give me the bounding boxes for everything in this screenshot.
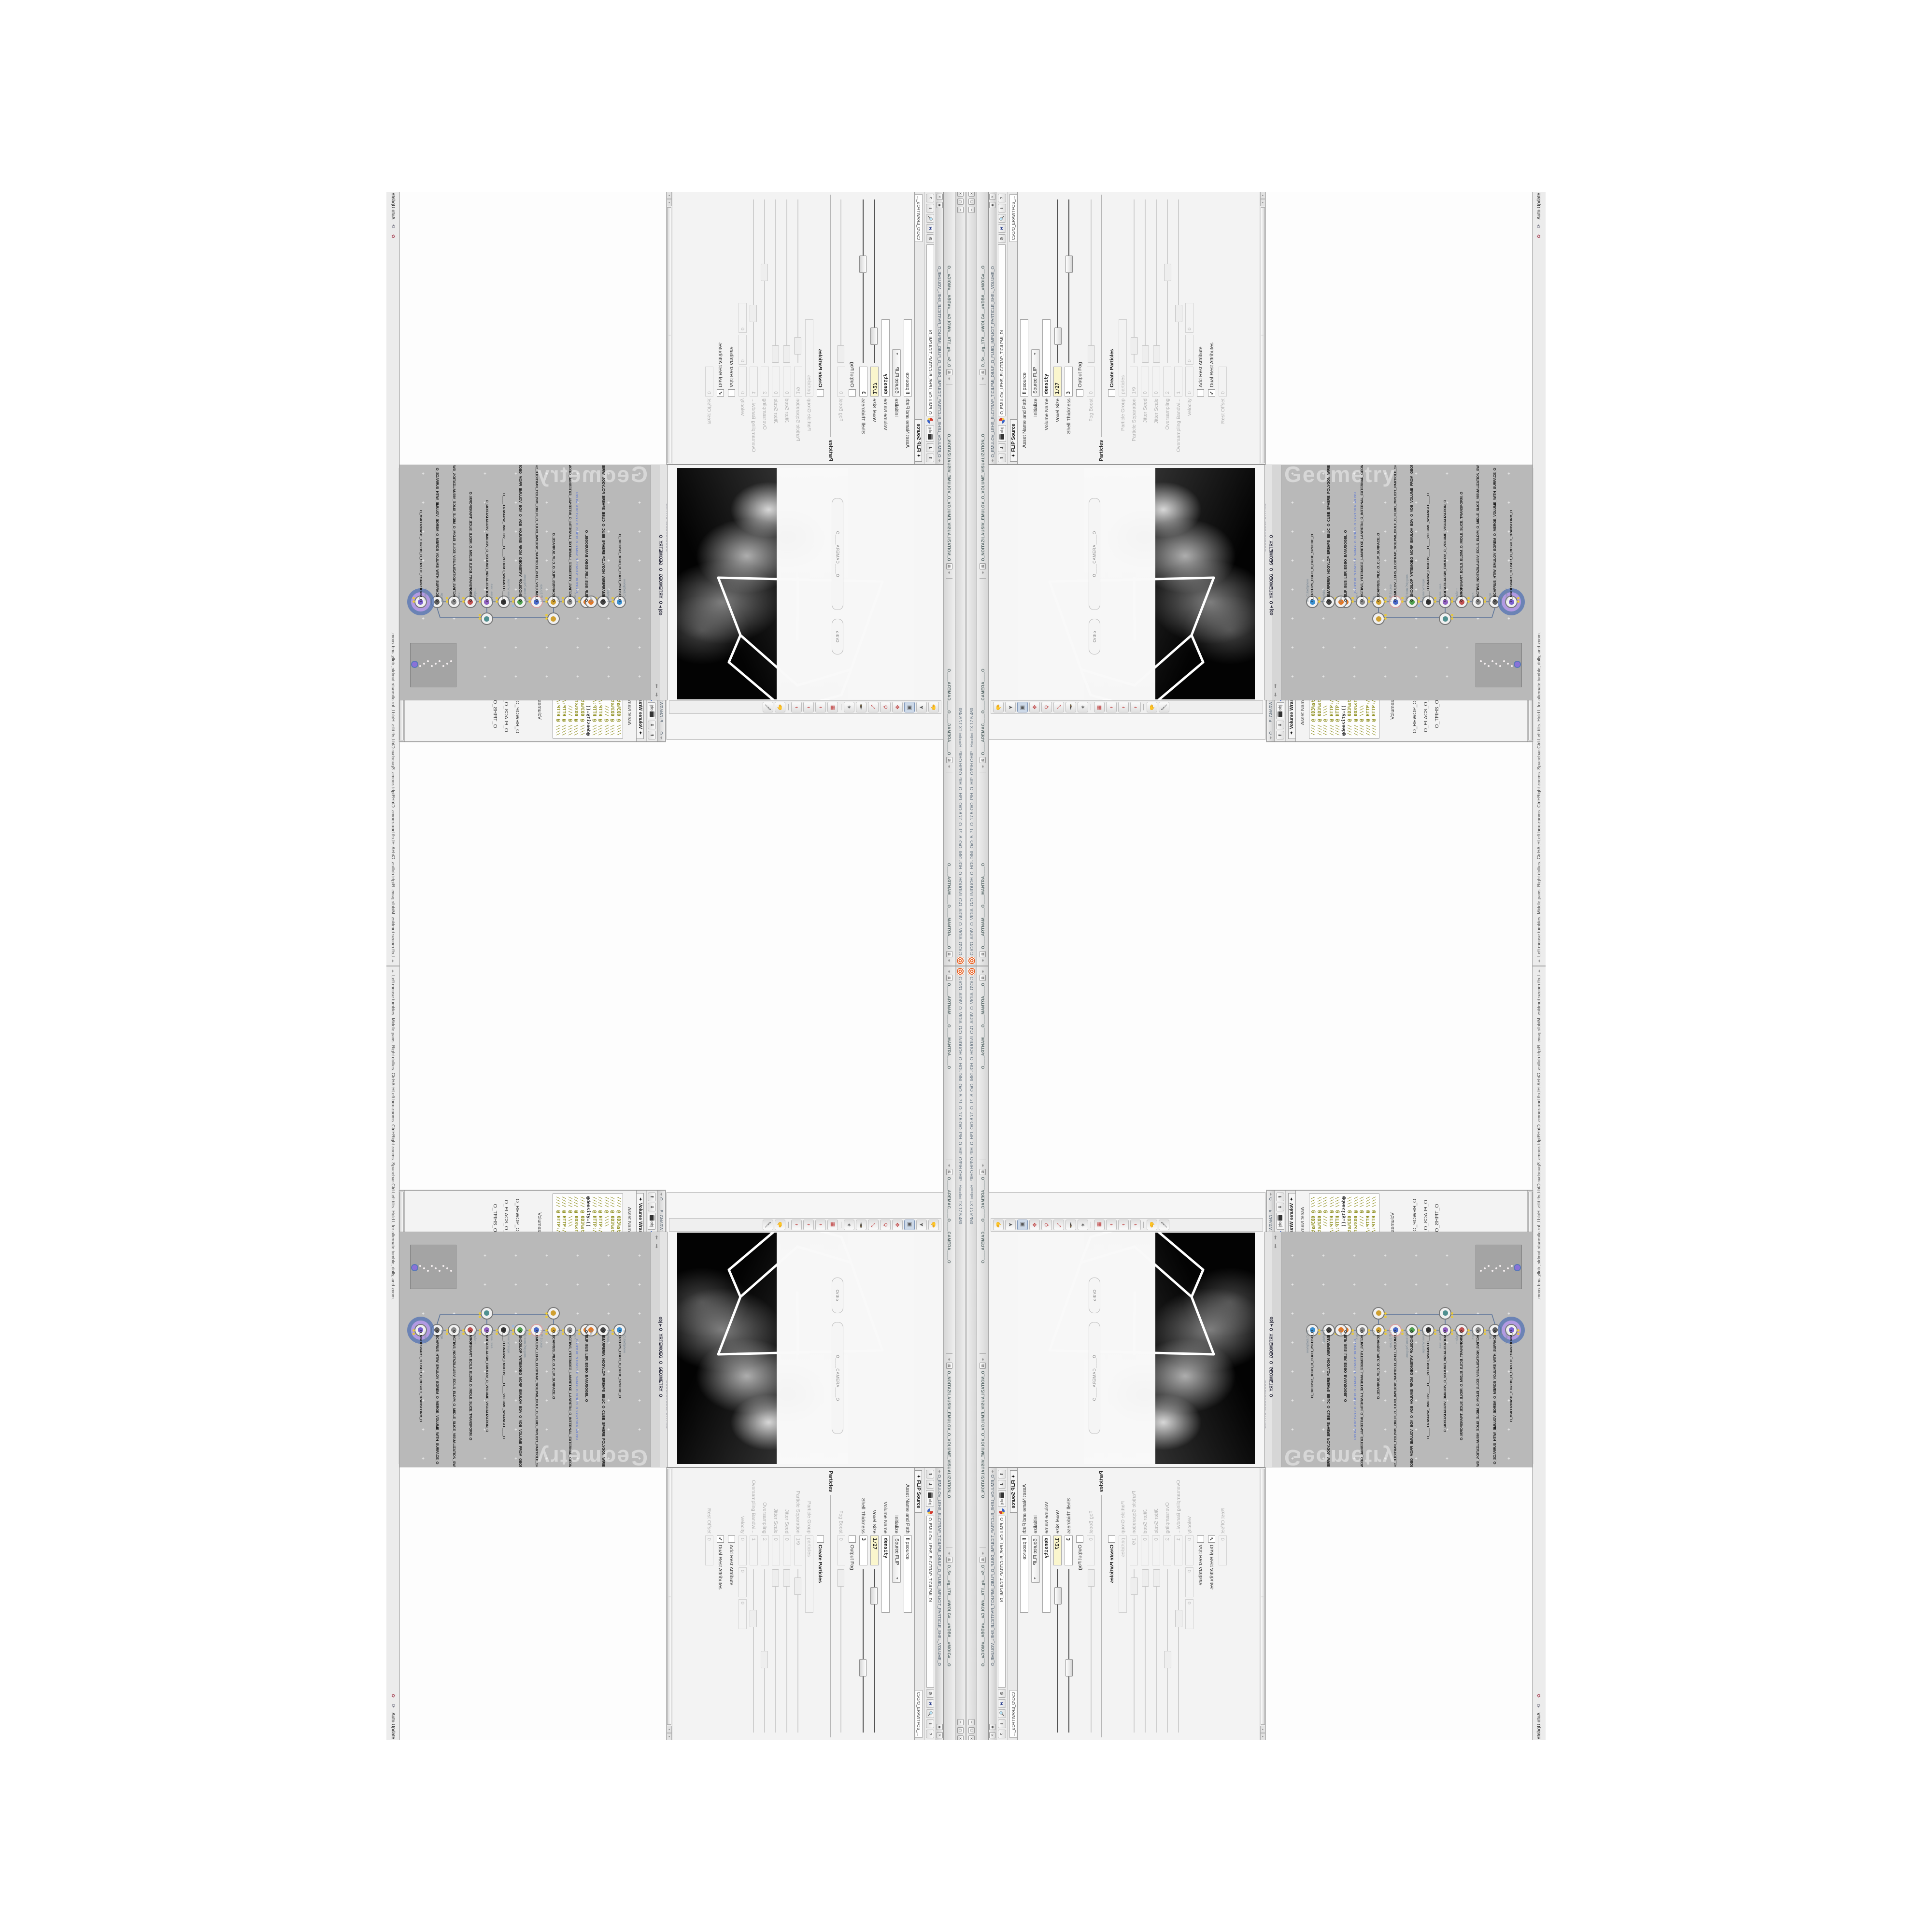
field-fog-boost[interactable]: 0	[1087, 1535, 1095, 1565]
node-flag-badge[interactable]	[1451, 597, 1453, 599]
node-flag-badge[interactable]	[496, 600, 498, 603]
slider-handle[interactable]	[838, 1569, 845, 1587]
checkbox-dual-rest-attributes[interactable]: ✓	[1208, 389, 1215, 397]
network-node-clip[interactable]	[1372, 612, 1385, 625]
network-node-visualize[interactable]	[481, 1307, 493, 1320]
slider-oversampling[interactable]	[765, 1569, 766, 1733]
node-flag-badge[interactable]	[1384, 617, 1387, 620]
close-window-icon[interactable]: ✕	[937, 1732, 943, 1738]
gear-icon[interactable]: ⚙	[926, 234, 935, 243]
node-flag-badge[interactable]	[462, 1329, 465, 1332]
gear-icon[interactable]: ⚙	[998, 1689, 1006, 1698]
select-arrow-icon[interactable]: ➤	[1005, 1220, 1016, 1230]
gear-icon[interactable]: ⚙	[926, 1689, 935, 1698]
rotate-tool-icon[interactable]: ⟳	[880, 1220, 891, 1230]
field-particle-group[interactable]: particles	[805, 1535, 813, 1613]
field-shell-thickness[interactable]: 3	[1065, 367, 1073, 397]
slider-voxel-size[interactable]	[874, 1569, 875, 1733]
node-flag-badge[interactable]	[545, 614, 548, 616]
field-shell-thickness[interactable]: 3	[859, 367, 867, 397]
node-flag-badge[interactable]	[545, 1333, 548, 1335]
node-flag-badge[interactable]	[1517, 600, 1520, 603]
node-flag-badge[interactable]	[1501, 597, 1503, 599]
slider-handle[interactable]	[871, 1587, 878, 1605]
node-flag-badge[interactable]	[1451, 1316, 1453, 1318]
nav-down-icon[interactable]: ⬇	[926, 1480, 935, 1489]
node-flag-badge[interactable]	[1451, 1329, 1453, 1332]
pin-window-icon[interactable]: ◉	[989, 1724, 995, 1730]
restore-icon[interactable]: ▢	[957, 199, 964, 205]
node-flag-badge[interactable]	[412, 600, 415, 603]
view-tool-icon[interactable]: ✋	[993, 1220, 1004, 1230]
brush-tool-icon[interactable]: 🖌	[1159, 702, 1169, 712]
docked-window-titlebar[interactable]: ◂▸⊠O_5=__#g_1T#__#WOLG#__#VDB#__#MOIG#__…	[946, 192, 952, 383]
minimize-icon[interactable]: ‒	[957, 1719, 964, 1725]
field-fog-boost[interactable]: 0	[837, 1535, 845, 1565]
pane-tab-flip-source[interactable]: ✦FLIP Source	[915, 419, 922, 462]
asset-path-field[interactable]: C:/O/O_ERAWTFOS_...	[915, 194, 923, 242]
ortho-pill[interactable]: Ortho	[832, 619, 843, 654]
network-node-clip[interactable]	[547, 1307, 560, 1320]
field-velocity[interactable]: 0	[739, 335, 747, 365]
field-jitter-scale[interactable]: 0	[772, 367, 780, 397]
node-flag-badge[interactable]	[446, 1333, 448, 1335]
network-path-field[interactable]: O_EMULOV_LEHS_ELCITRAP_TICILPMI_DI	[926, 1516, 934, 1688]
slider-handle[interactable]	[1131, 337, 1138, 355]
hscroll-thumb[interactable]: ⠿	[1261, 207, 1265, 463]
obj-tab[interactable]: obj	[1276, 702, 1284, 719]
nav-down-icon[interactable]: ⬇	[648, 1203, 656, 1211]
snap-multi-icon[interactable]: ⌁	[791, 1220, 802, 1230]
node-flag-badge[interactable]	[496, 597, 498, 599]
docked-window-titlebar[interactable]: ◂▸⊠O_NOITAZILAUSIV_EMULOV_O_VOLUME_VISUA…	[980, 384, 986, 577]
node-flag-badge[interactable]	[1517, 597, 1520, 599]
asset-path-field[interactable]: C:/O/O_ERAWTFOS_...	[1009, 1690, 1017, 1738]
window-titlebar[interactable]: ◂▸O_EMULOV_LEHS_ELCITRAP_TICILPMI_DIULF_…	[989, 1468, 996, 1740]
docked-window-titlebar[interactable]: ◂▸⊠O____AREMAC____O____CAMERA____O	[980, 1162, 986, 1354]
field-jitter-seed[interactable]: 0	[783, 1535, 791, 1565]
scale-tool-icon[interactable]: ⤢	[1053, 702, 1064, 712]
close-window-icon[interactable]: ✕	[937, 194, 943, 200]
close-docked-icon[interactable]: ⊠	[980, 1169, 986, 1175]
restore-icon[interactable]: ▢	[968, 199, 975, 205]
network-minimap[interactable]	[1476, 643, 1522, 687]
network-node-clip[interactable]	[547, 612, 560, 625]
snap-edge-icon[interactable]: ⌁	[803, 702, 814, 712]
refresh-icon[interactable]: ⟳	[1535, 223, 1543, 230]
checkbox-dual-rest-attributes[interactable]: ✓	[717, 1535, 724, 1543]
node-flag-badge[interactable]	[429, 1329, 431, 1332]
node-flag-badge[interactable]	[479, 1316, 481, 1318]
main-titlebar[interactable]: C:/O/O_AIDIV_O_VIDIA_O/O_INIDUOH_O_HOUDI…	[955, 966, 966, 1740]
slider-voxel-size[interactable]	[874, 199, 875, 363]
slider-particle-separation[interactable]	[798, 199, 799, 363]
brush-tool-icon[interactable]: 🖌	[1159, 1220, 1169, 1230]
slider-particle-separation[interactable]	[1134, 1569, 1135, 1733]
node-flag-badge[interactable]	[545, 597, 548, 599]
checkbox-output-fog[interactable]	[849, 389, 856, 397]
node-flag-badge[interactable]	[1418, 1329, 1420, 1332]
node-flag-badge[interactable]	[479, 1329, 481, 1332]
node-flag-badge[interactable]	[462, 600, 465, 603]
docked-window-titlebar[interactable]: ◂▸⊠O_NOITAZILAUSIV_EMULOV_O_VOLUME_VISUA…	[946, 1356, 952, 1548]
node-flag-badge[interactable]	[1401, 597, 1404, 599]
network-node-visualize[interactable]	[1439, 1307, 1451, 1320]
asset-name-field[interactable]: flipsource	[904, 319, 912, 397]
slider-handle[interactable]	[750, 1610, 757, 1627]
nav-up-icon[interactable]: ⬆	[998, 1470, 1006, 1478]
node-flag-badge[interactable]	[1318, 597, 1321, 599]
node-flag-badge[interactable]	[1368, 1333, 1370, 1335]
scroll-left-icon[interactable]: ◂	[667, 199, 672, 206]
slider-jitter-seed[interactable]	[1145, 1569, 1146, 1733]
node-flag-badge[interactable]	[1501, 1329, 1503, 1332]
node-flag-badge[interactable]	[1318, 1329, 1321, 1332]
node-flag-badge[interactable]	[545, 1329, 548, 1332]
close-window-icon[interactable]: ✕	[989, 1732, 995, 1738]
field-jitter-seed[interactable]: 0	[1141, 367, 1149, 397]
close-docked-icon[interactable]: ⊠	[946, 563, 952, 569]
node-flag-badge[interactable]	[545, 600, 548, 603]
docked-window-titlebar[interactable]: ◂▸⊠O____AREMAC____O____CAMERA____O	[946, 1162, 952, 1354]
rotate-tool-icon[interactable]: ⟳	[1041, 1220, 1052, 1230]
docked-window-titlebar[interactable]: ◂▸⊠O_5=__#g_1T#__#WOLG#__#VDB#__#MOIG#__…	[980, 1550, 986, 1740]
close-docked-icon[interactable]: ⊠	[980, 757, 986, 763]
slider-handle[interactable]	[772, 345, 780, 363]
snap-grid-icon[interactable]: ▦	[827, 1220, 838, 1230]
slider-handle[interactable]	[795, 1577, 802, 1595]
select-box-icon[interactable]: ▣	[904, 1220, 915, 1230]
slider-fog-boost[interactable]	[1091, 1569, 1092, 1733]
close-docked-icon[interactable]: ⊠	[946, 369, 952, 375]
field-fog-boost[interactable]: 0	[837, 367, 845, 397]
close-icon[interactable]: ✕	[957, 192, 964, 197]
select-box-icon[interactable]: ▣	[904, 702, 915, 712]
close-docked-icon[interactable]: ⊠	[980, 975, 986, 981]
menu-initialize[interactable]: Source FLIP▼	[1031, 349, 1040, 397]
close-docked-icon[interactable]: ⊠	[980, 563, 986, 569]
pane-hscrollbar[interactable]: ⠿◂▸	[1260, 192, 1265, 464]
field-velocity[interactable]: 0	[739, 1567, 747, 1597]
node-flag-badge[interactable]	[1484, 597, 1486, 599]
close-docked-icon[interactable]: ⊠	[946, 975, 952, 981]
obj-tab[interactable]: obj	[648, 702, 656, 719]
auto-update-selector[interactable]: Auto Update▾	[390, 1712, 396, 1740]
asset-path-field[interactable]: C:/O/O_ERAWTFOS_...	[1009, 194, 1017, 242]
brush-tool-icon[interactable]: 🖌	[763, 702, 773, 712]
node-flag-badge[interactable]	[1351, 597, 1354, 599]
node-flag-badge[interactable]	[1401, 1333, 1404, 1335]
select-arrow-icon[interactable]: ➤	[916, 1220, 927, 1230]
node-flag-badge[interactable]	[446, 597, 448, 599]
slider-handle[interactable]	[1142, 1569, 1149, 1587]
rotate-tool-icon[interactable]: ⟳	[1041, 702, 1052, 712]
ortho-pill[interactable]: Ortho	[1089, 1278, 1100, 1313]
field-particle-separation[interactable]: 1/9	[1130, 1535, 1138, 1565]
field-particle-group[interactable]: particles	[1119, 1535, 1127, 1613]
camera-pill[interactable]: O____CAMERA____O	[832, 498, 843, 610]
node-flag-badge[interactable]	[528, 1329, 531, 1332]
close-docked-icon[interactable]: ⊠	[946, 1557, 952, 1563]
node-flag-badge[interactable]	[528, 1333, 531, 1335]
field-oversampling[interactable]: 2	[761, 1535, 769, 1565]
slider-jitter-seed[interactable]	[787, 199, 788, 363]
field-particle-group[interactable]: particles	[1119, 319, 1127, 397]
select-box-icon[interactable]: ▣	[1017, 702, 1028, 712]
node-flag-badge[interactable]	[545, 1312, 548, 1315]
close-icon[interactable]: ✕	[968, 192, 975, 197]
slider-jitter-scale[interactable]	[1156, 1569, 1157, 1733]
node-flag-badge[interactable]	[446, 1329, 448, 1332]
docked-window-titlebar[interactable]: ◂▸⊠O____ARTNAM____O____MANTRA____O	[980, 772, 986, 965]
field-oversampling-bandwi[interactable]: 1	[750, 1535, 758, 1565]
camera-pill[interactable]: O____CAMERA____O	[1089, 498, 1100, 610]
network-node-visualize[interactable]	[1439, 612, 1451, 625]
info-icon[interactable]: ℹ	[926, 204, 935, 213]
network-node-clip[interactable]	[1372, 1307, 1385, 1320]
node-flag-badge[interactable]	[1351, 1329, 1354, 1332]
snap-edge-icon[interactable]: ⌁	[1118, 702, 1129, 712]
slider-handle[interactable]	[1065, 1659, 1073, 1676]
slider-handle[interactable]	[1164, 1651, 1171, 1668]
field-shell-thickness[interactable]: 3	[859, 1535, 867, 1565]
axis-gizmo-icon[interactable]: ✶	[1078, 1220, 1088, 1230]
slider-handle[interactable]	[761, 1651, 768, 1668]
node-flag-badge[interactable]	[429, 600, 431, 603]
node-flag-badge[interactable]	[1451, 600, 1453, 603]
slider-handle[interactable]	[1175, 1610, 1182, 1627]
pane-hscrollbar[interactable]: ⠿◂▸	[1260, 1468, 1265, 1740]
slider-handle[interactable]	[783, 1569, 791, 1587]
node-flag-badge[interactable]	[1384, 597, 1387, 599]
window-titlebar[interactable]: ◂▸O_EMULOV_LEHS_ELCITRAP_TICILPMI_DIULF_…	[936, 1468, 943, 1740]
checkbox-output-fog[interactable]	[849, 1535, 856, 1543]
close-docked-icon[interactable]: ⊠	[980, 1363, 986, 1369]
field-fog-boost[interactable]: 0	[1087, 367, 1095, 397]
slider-oversampling-bandwi[interactable]	[753, 1569, 754, 1733]
node-flag-badge[interactable]	[1517, 1329, 1520, 1332]
slider-handle[interactable]	[860, 1659, 867, 1676]
magnify-icon[interactable]: 🔍	[926, 214, 935, 223]
node-flag-badge[interactable]	[545, 1316, 548, 1318]
field-rest-offset[interactable]: 0	[1219, 367, 1227, 397]
slider-oversampling-bandwi[interactable]	[1178, 1569, 1179, 1733]
node-flag-badge[interactable]	[578, 600, 581, 603]
snap-edge-icon[interactable]: ⌁	[803, 1220, 814, 1230]
node-flag-badge[interactable]	[1484, 1329, 1486, 1332]
node-flag-badge[interactable]	[1451, 617, 1453, 620]
slider-oversampling[interactable]	[1167, 199, 1168, 363]
close-docked-icon[interactable]: ⊠	[946, 1363, 952, 1369]
nav-up-icon[interactable]: ⬆	[648, 731, 656, 739]
slider-handle[interactable]	[750, 305, 757, 322]
hscroll-thumb[interactable]: ⠿	[668, 207, 672, 463]
field-particle-separation[interactable]: 1/9	[1130, 367, 1138, 397]
node-flag-badge[interactable]	[1484, 1333, 1486, 1335]
menu-initialize[interactable]: Source FLIP▼	[893, 349, 901, 397]
snap-grid-icon[interactable]: ▦	[827, 702, 838, 712]
field-velocity[interactable]: 0	[739, 367, 747, 397]
checkbox-add-rest-attribute[interactable]	[1197, 389, 1204, 397]
select-box-icon[interactable]: ▣	[1017, 1220, 1028, 1230]
nav-up-icon[interactable]: ⬆	[648, 1193, 656, 1201]
node-flag-badge[interactable]	[1434, 600, 1436, 603]
axis-gizmo-icon[interactable]: ✶	[844, 1220, 854, 1230]
close-window-icon[interactable]: ✕	[989, 194, 995, 200]
node-flag-badge[interactable]	[1368, 597, 1370, 599]
nav-down-icon[interactable]: ⬇	[998, 1480, 1006, 1489]
pose-tool-icon[interactable]: 🕴	[856, 702, 867, 712]
snap-edge-icon[interactable]: ⌁	[1118, 1220, 1129, 1230]
ortho-pill[interactable]: Ortho	[832, 1278, 843, 1313]
checkbox-dual-rest-attributes[interactable]: ✓	[717, 389, 724, 397]
node-flag-badge[interactable]	[528, 597, 531, 599]
info-icon[interactable]: ℹ	[998, 1719, 1006, 1728]
refresh-icon[interactable]: ⟳	[389, 223, 397, 230]
node-flag-badge[interactable]	[1418, 597, 1420, 599]
field-particle-group[interactable]: particles	[805, 319, 813, 397]
pane-hscrollbar[interactable]: ⠿◂▸	[667, 1468, 672, 1740]
obj-tab[interactable]: obj	[998, 1490, 1006, 1507]
node-flag-badge[interactable]	[1318, 1333, 1321, 1335]
node-flag-badge[interactable]	[479, 597, 481, 599]
nav-down-icon[interactable]: ⬇	[926, 443, 935, 452]
field-velocity[interactable]: 0	[739, 1599, 747, 1629]
select-arrow-icon[interactable]: ➤	[1005, 702, 1016, 712]
field-jitter-seed[interactable]: 0	[1141, 1535, 1149, 1565]
nav-up-icon[interactable]: ⬆	[1276, 1193, 1284, 1201]
nav-down-icon[interactable]: ⬇	[648, 721, 656, 729]
view-tool-icon[interactable]: ✋	[993, 702, 1004, 712]
pose-tool-icon[interactable]: 🕴	[856, 1220, 867, 1230]
node-flag-badge[interactable]	[1384, 1316, 1387, 1318]
checkbox-create-particles[interactable]	[1108, 1535, 1115, 1543]
node-flag-badge[interactable]	[1384, 1312, 1387, 1315]
select-arrow-icon[interactable]: ➤	[916, 702, 927, 712]
rotate-tool-icon[interactable]: ⟳	[880, 702, 891, 712]
slider-shell-thickness[interactable]	[863, 1569, 864, 1733]
docked-window-titlebar[interactable]: ◂▸⊠O____AREMAC____O____CAMERA____O	[980, 578, 986, 770]
field-velocity[interactable]: 0	[1185, 367, 1193, 397]
slider-handle[interactable]	[1088, 345, 1095, 363]
node-flag-badge[interactable]	[611, 1329, 614, 1332]
node-flag-badge[interactable]	[1384, 600, 1387, 603]
scale-tool-icon[interactable]: ⤢	[1053, 1220, 1064, 1230]
field-velocity[interactable]: 0	[739, 303, 747, 333]
node-flag-badge[interactable]	[1368, 1329, 1370, 1332]
asset-name-field[interactable]: flipsource	[1020, 319, 1028, 397]
slider-handle[interactable]	[1054, 1587, 1062, 1605]
node-flag-badge[interactable]	[1451, 1312, 1453, 1315]
node-flag-badge[interactable]	[1434, 597, 1436, 599]
slider-handle[interactable]	[1175, 305, 1182, 322]
checkbox-output-fog[interactable]	[1076, 389, 1083, 397]
nav-up-icon[interactable]: ⬆	[926, 1470, 935, 1478]
node-flag-badge[interactable]	[1401, 1329, 1404, 1332]
slider-shell-thickness[interactable]	[863, 199, 864, 363]
node-flag-badge[interactable]	[479, 600, 481, 603]
snap-grid-icon[interactable]: ▦	[1094, 1220, 1105, 1230]
slider-jitter-seed[interactable]	[1145, 199, 1146, 363]
network-editor-pane[interactable]: MOEG_O_GEOMETRY_Oobj ▸ O_YRTEMOEG_O_GEOM…	[1264, 1232, 1533, 1467]
node-flag-badge[interactable]	[1418, 1333, 1420, 1335]
ortho-pill[interactable]: Ortho	[1089, 619, 1100, 654]
node-flag-badge[interactable]	[412, 597, 415, 599]
snap-multi-icon[interactable]: ⌁	[791, 702, 802, 712]
field-velocity[interactable]: 0	[1185, 1535, 1193, 1565]
magnify-icon[interactable]: 🔍	[998, 1709, 1006, 1718]
docked-window-titlebar[interactable]: ◂▸⊠O____AREMAC____O____CAMERA____O	[946, 578, 952, 770]
menu-initialize[interactable]: Source FLIP▼	[893, 1535, 901, 1583]
node-flag-badge[interactable]	[496, 1329, 498, 1332]
node-flag-badge[interactable]	[479, 614, 481, 616]
checkbox-add-rest-attribute[interactable]	[1197, 1535, 1204, 1543]
magnify-icon[interactable]: 🔍	[926, 1709, 935, 1718]
slider-jitter-scale[interactable]	[1156, 199, 1157, 363]
minimize-icon[interactable]: ‒	[968, 1719, 975, 1725]
slider-jitter-seed[interactable]	[787, 1569, 788, 1733]
snap-point-icon[interactable]: ⌁	[815, 702, 826, 712]
hand-tool-icon[interactable]: ✋	[1147, 1220, 1157, 1230]
checkbox-create-particles[interactable]	[817, 1535, 824, 1543]
auto-update-selector[interactable]: Auto Update▾	[390, 192, 396, 220]
slider-handle[interactable]	[1131, 1577, 1138, 1595]
obj-tab[interactable]: obj	[648, 1213, 656, 1230]
slider-handle[interactable]	[1142, 345, 1149, 363]
network-node-visualize[interactable]	[481, 612, 493, 625]
node-flag-badge[interactable]	[1384, 614, 1387, 616]
node-flag-badge[interactable]	[562, 600, 564, 603]
close-docked-icon[interactable]: ⊠	[980, 951, 986, 957]
scroll-left-icon[interactable]: ◂	[667, 1726, 672, 1733]
asset-name-field[interactable]: flipsource	[904, 1535, 912, 1613]
slider-particle-separation[interactable]	[1134, 199, 1135, 363]
nav-up-icon[interactable]: ⬆	[998, 454, 1006, 462]
node-flag-badge[interactable]	[479, 1312, 481, 1315]
scroll-right-icon[interactable]: ▸	[1260, 1733, 1265, 1740]
main-titlebar[interactable]: C:/O/O_AIDIV_O_VIDIA_O/O_INIDUOH_O_HOUDI…	[966, 966, 977, 1740]
slider-handle[interactable]	[838, 345, 845, 363]
hand-tool-icon[interactable]: ✋	[775, 1220, 785, 1230]
node-flag-badge[interactable]	[562, 597, 564, 599]
field-jitter-scale[interactable]: 0	[1152, 1535, 1160, 1565]
slider-jitter-scale[interactable]	[776, 199, 777, 363]
snap-point-icon[interactable]: ⌁	[815, 1220, 826, 1230]
field-oversampling-bandwi[interactable]: 1	[1174, 1535, 1182, 1565]
restore-icon[interactable]: ▢	[968, 1727, 975, 1733]
slider-handle[interactable]	[1088, 1569, 1095, 1587]
slider-handle[interactable]	[761, 264, 768, 281]
field-volume-name[interactable]: density	[1042, 1535, 1051, 1613]
pose-tool-icon[interactable]: 🕴	[1065, 702, 1076, 712]
pose-tool-icon[interactable]: 🕴	[1065, 1220, 1076, 1230]
close-docked-icon[interactable]: ⊠	[980, 369, 986, 375]
scroll-left-icon[interactable]: ◂	[1260, 1726, 1265, 1733]
field-velocity[interactable]: 0	[1185, 335, 1193, 365]
checkbox-add-rest-attribute[interactable]	[728, 389, 735, 397]
field-oversampling[interactable]: 2	[1163, 1535, 1171, 1565]
field-jitter-scale[interactable]: 0	[772, 1535, 780, 1565]
node-flag-badge[interactable]	[578, 1329, 581, 1332]
info-icon[interactable]: ℹ	[926, 1719, 935, 1728]
hscroll-thumb[interactable]: ⠿	[1261, 1469, 1265, 1725]
slider-shell-thickness[interactable]	[1068, 1569, 1069, 1733]
hand-tool-icon[interactable]: ✋	[775, 702, 785, 712]
field-voxel-size[interactable]: 1/27	[1053, 367, 1062, 397]
move-tool-icon[interactable]: ✥	[1029, 1220, 1040, 1230]
axis-gizmo-icon[interactable]: ✶	[844, 702, 854, 712]
scroll-left-icon[interactable]: ◂	[1260, 199, 1265, 206]
